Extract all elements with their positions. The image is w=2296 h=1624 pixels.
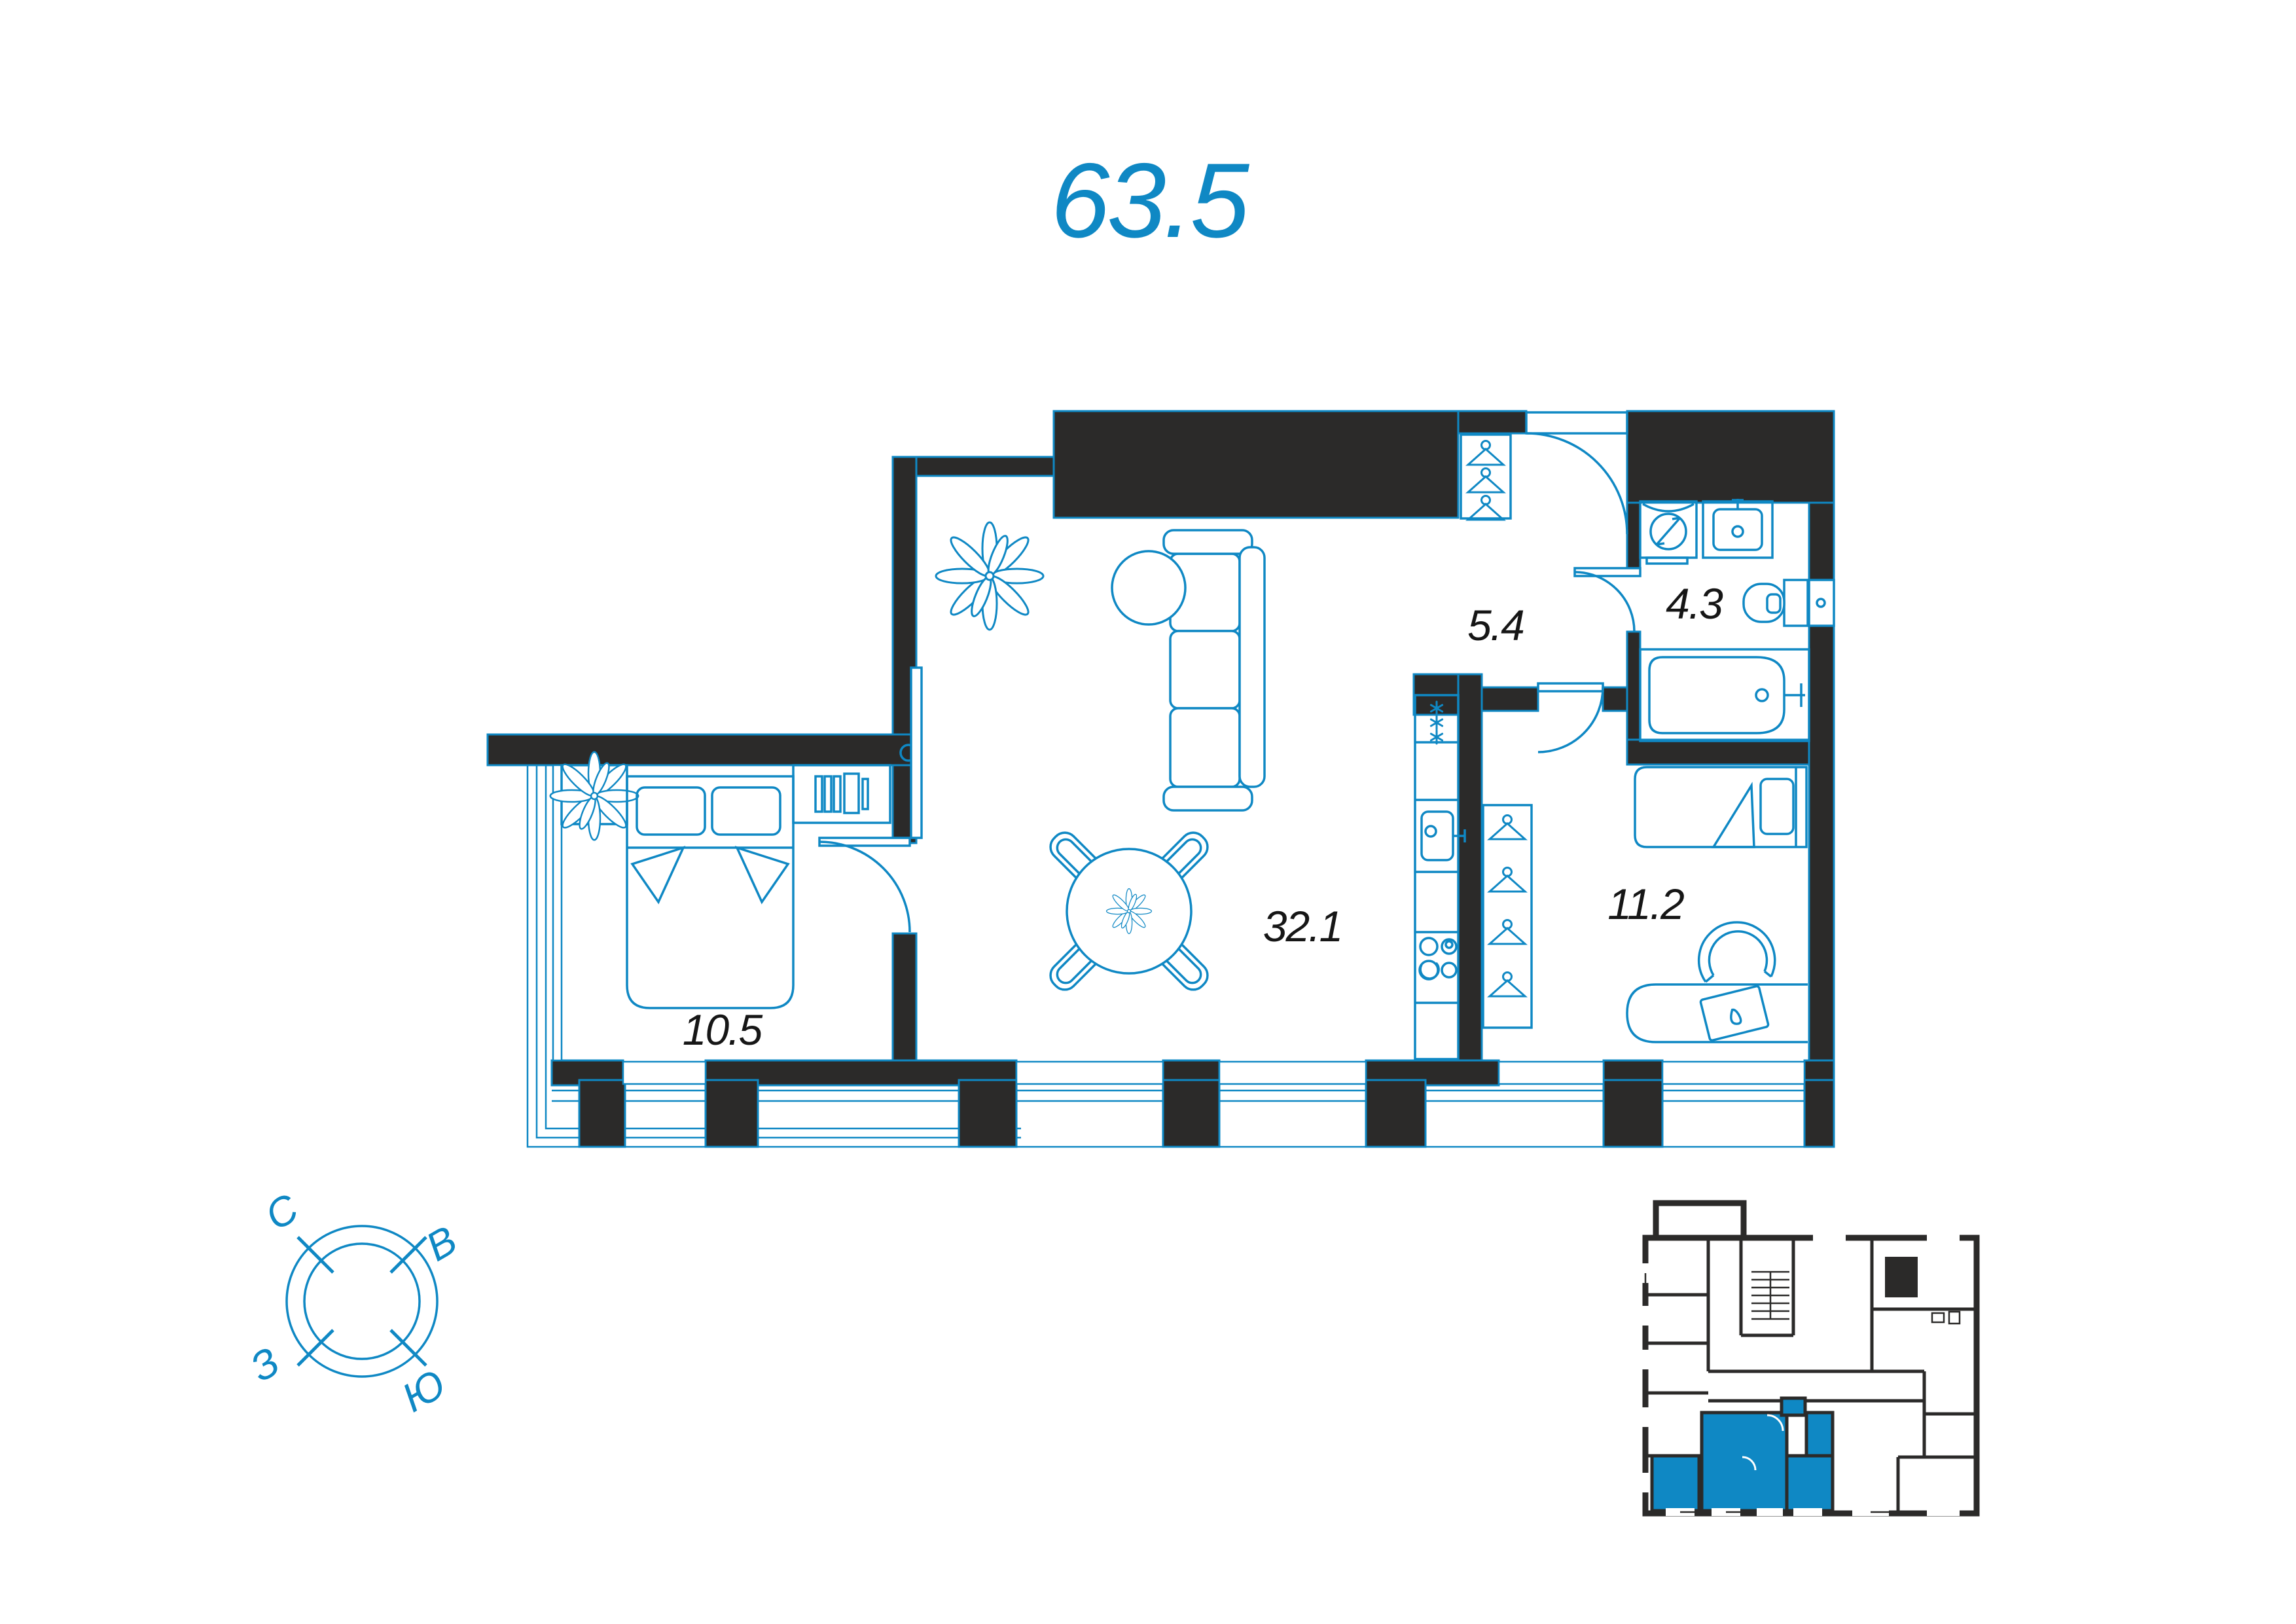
single-bed-icon <box>1635 767 1806 847</box>
double-bed-icon <box>627 776 793 1008</box>
washing-machine-icon <box>1640 501 1696 564</box>
floor-plan-canvas: 63.5 <box>0 0 2296 1624</box>
room-label-living: 32.1 <box>1263 902 1342 950</box>
bookshelf-icon <box>793 765 890 823</box>
compass-north: С <box>258 1185 306 1240</box>
room-label-bathroom: 4.3 <box>1666 579 1723 628</box>
laptop-icon <box>1700 986 1769 1041</box>
mini-stairs <box>1751 1272 1789 1319</box>
bedroom2-door <box>1538 683 1603 752</box>
stove-icon <box>1420 938 1456 979</box>
toilet-icon <box>1744 580 1834 626</box>
table-flower-icon <box>1107 889 1152 934</box>
kitchen-unit <box>1415 695 1465 1059</box>
compass-west: З <box>243 1339 287 1391</box>
floor-plan-page: 63.5 <box>0 0 2296 1624</box>
wardrobe-icon <box>1483 805 1532 1028</box>
office-chair-icon <box>1699 922 1775 982</box>
compass-south: Ю <box>395 1362 453 1421</box>
room-living-kitchen: 32.1 <box>901 522 1465 1059</box>
desk-icon <box>1627 984 1808 1042</box>
room-bedroom-main: 10.5 <box>550 752 890 1054</box>
page-title: 63.5 <box>1050 141 1249 260</box>
bathroom-sink-icon <box>1703 499 1772 558</box>
room-bathroom: 4.3 <box>1640 499 1834 741</box>
room-label-bedroom: 10.5 <box>683 1005 763 1054</box>
dining-set <box>1045 827 1213 995</box>
mini-building-plan <box>1641 1203 1977 1516</box>
mini-shaft <box>1885 1257 1918 1297</box>
bathroom-door <box>1575 568 1640 632</box>
room-hallway: 5.4 <box>1461 435 1524 649</box>
bedroom-door <box>819 838 910 932</box>
coffee-table-icon <box>1112 551 1185 624</box>
entry-door <box>1526 412 1627 534</box>
tv-icon <box>911 668 922 838</box>
room-bedroom-second: 11.2 <box>1483 767 1808 1042</box>
plant-icon <box>550 752 638 840</box>
plant-icon <box>936 522 1043 630</box>
room-label-bedroom2: 11.2 <box>1607 880 1684 928</box>
bathtub-icon <box>1640 649 1809 741</box>
compass: С В З Ю <box>243 1185 465 1421</box>
room-label-hallway: 5.4 <box>1467 601 1524 649</box>
